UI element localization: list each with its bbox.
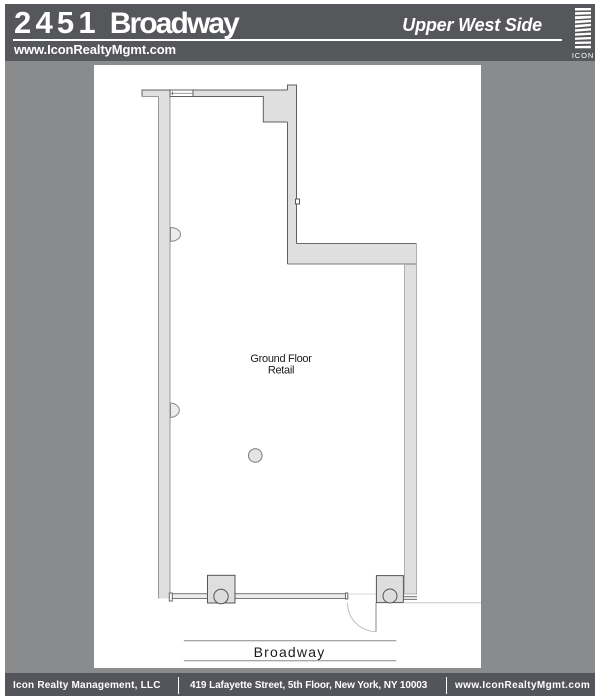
svg-text:Ground Floor: Ground Floor xyxy=(250,353,312,365)
svg-text:Retail: Retail xyxy=(268,365,294,377)
svg-text:ICON: ICON xyxy=(572,51,594,60)
svg-text:Broadway: Broadway xyxy=(254,644,326,660)
